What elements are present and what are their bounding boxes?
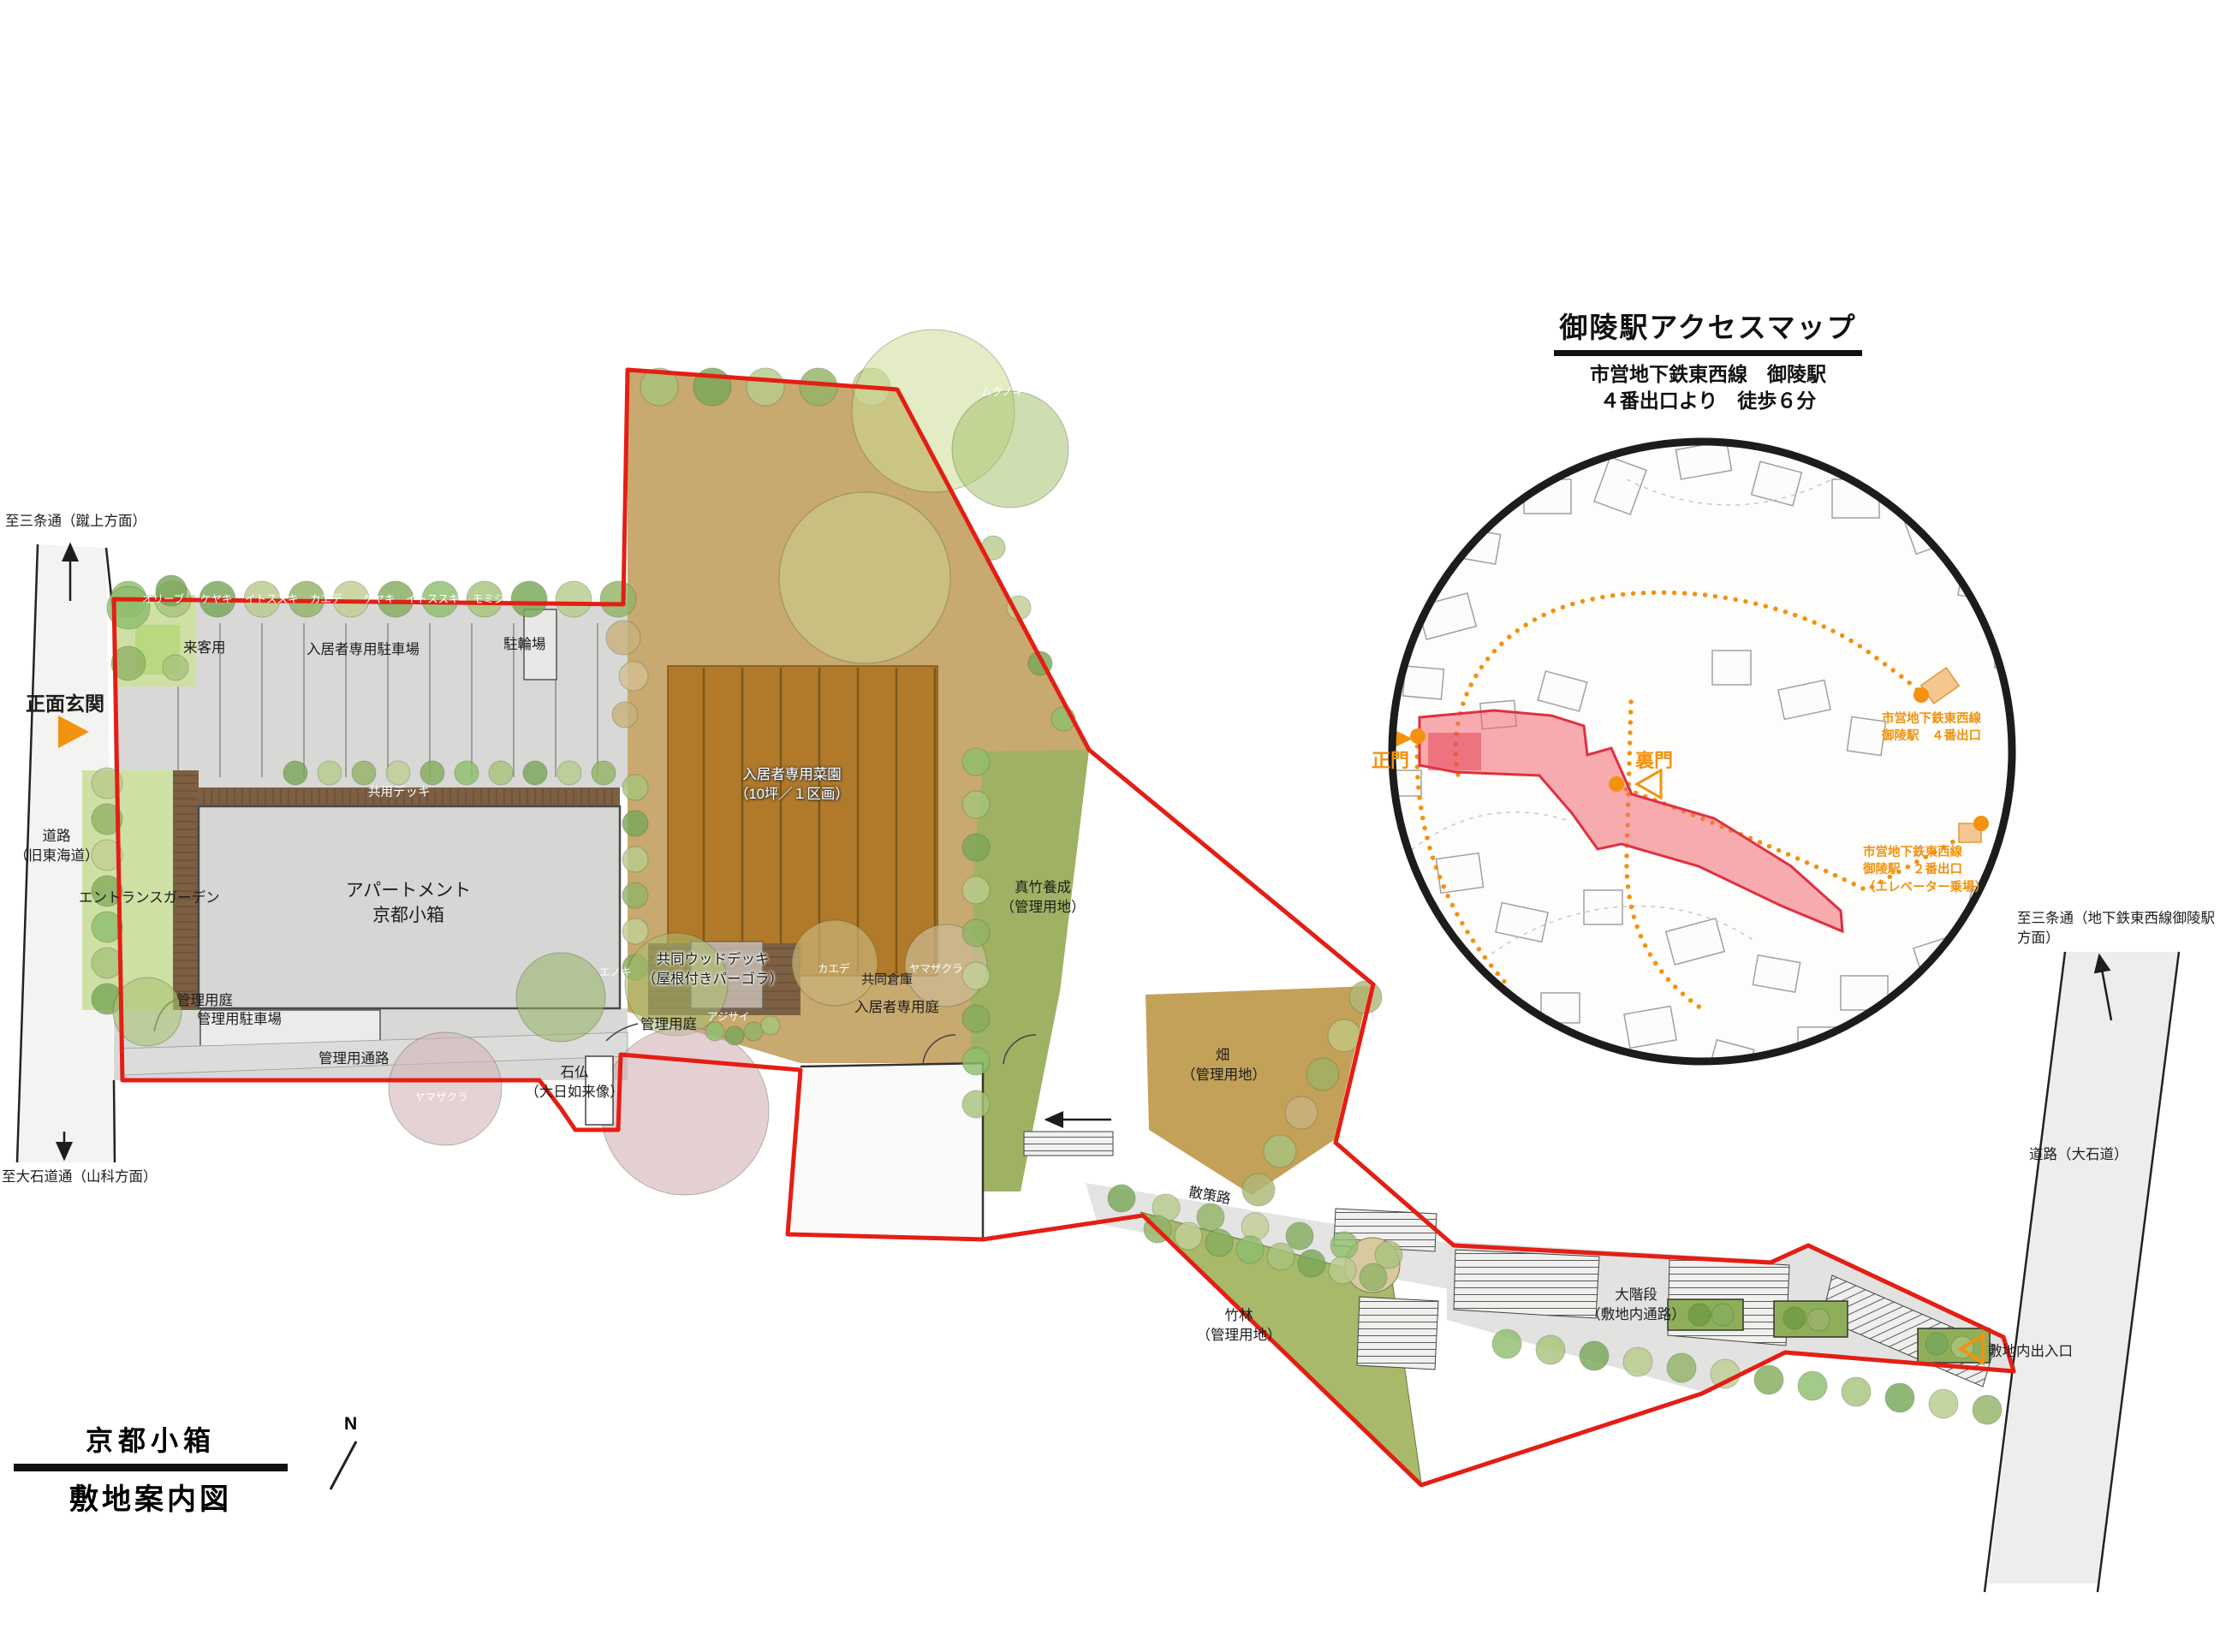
tree-icon (386, 761, 410, 785)
tree-icon (761, 1016, 780, 1035)
tree-icon (601, 1027, 769, 1195)
sheet-title: 敷地案内図 (14, 1471, 288, 1518)
tree-icon (1329, 1257, 1356, 1284)
label-front-entrance: 正面玄関 (26, 690, 104, 717)
tree-icon (606, 621, 640, 655)
tree-icon (556, 581, 592, 617)
tree-icon (489, 761, 513, 785)
tree-icon (1536, 1335, 1565, 1364)
label-common-deck: 共用デッキ (368, 784, 431, 801)
tree-icon (1798, 1371, 1827, 1400)
small-steps (1024, 1132, 1113, 1156)
label-kanri-niwa-left: 管理用庭 (176, 991, 233, 1011)
label-resident-garden: 入居者専用庭 (854, 998, 939, 1018)
tree-icon (511, 581, 547, 617)
label-tree-itosusuki-1: イトススキ (245, 592, 299, 608)
tree-icon (1205, 1229, 1233, 1257)
tree-icon (1242, 1174, 1275, 1206)
tree-icon (619, 662, 648, 691)
tree-icon (1783, 1307, 1806, 1329)
tree-icon (962, 834, 990, 861)
label-visitor-parking: 来客用 (183, 639, 226, 658)
resident-private-garden (788, 1063, 983, 1239)
tree-icon (420, 761, 444, 785)
access-map-subtitle: 市営地下鉄東西線 御陵駅 ４番出口より 徒歩６分 (1537, 361, 1879, 414)
label-bicycle-parking: 駐輪場 (503, 635, 546, 655)
tree-icon (1285, 1096, 1318, 1129)
tree-icon (1286, 1222, 1313, 1250)
tree-icon (612, 702, 638, 728)
tree-icon (557, 761, 581, 785)
tree-icon (622, 918, 648, 944)
label-warehouse: 共同倉庫 (861, 971, 913, 989)
label-tree-kaede-row: カエデ (310, 592, 342, 608)
access-map (1382, 441, 2061, 1079)
tree-icon (1298, 1250, 1325, 1277)
label-tree-itosusuki-2: イトススキ (406, 592, 460, 608)
label-resident-parking: 入居者専用駐車場 (307, 640, 420, 660)
compass-north-label: N (344, 1414, 357, 1435)
label-chikurin: 竹林 （管理用地） (1192, 1306, 1286, 1346)
label-hatake: 畑 （管理用地） (1181, 1046, 1264, 1085)
tree-icon (1236, 1236, 1264, 1263)
tree-icon (622, 847, 648, 872)
label-tree-keyaki-1: ケヤキ (200, 592, 233, 608)
tree-icon (800, 368, 837, 406)
label-tree-olive: オリーブ (142, 592, 184, 608)
stairs-hatch (1357, 1297, 1438, 1370)
hatake-area (1146, 986, 1370, 1195)
tree-icon (1580, 1341, 1609, 1370)
tree-icon (1973, 1395, 2002, 1424)
tree-icon (622, 775, 648, 800)
tree-icon (962, 877, 990, 904)
stairs-hatch (1454, 1250, 1599, 1318)
label-wood-deck-label: 共同ウッドデッキ （屋根付きパーゴラ） (642, 950, 783, 989)
label-tree-ajisai: アジサイ (707, 1010, 750, 1025)
label-tree-yamazakura-1: ヤマザクラ (909, 962, 963, 978)
tree-icon (1688, 1304, 1711, 1326)
tree-icon (747, 368, 784, 406)
label-kanri-tsuro: 管理用通路 (318, 1049, 390, 1069)
label-tree-keyaki-2: ケヤキ (363, 592, 396, 608)
tree-icon (622, 882, 648, 908)
tree-icon (1330, 1232, 1358, 1259)
tree-icon (1328, 1019, 1360, 1052)
label-road-oishi: 道路（大石道） (2029, 1145, 2128, 1165)
tree-icon (1929, 1389, 1958, 1418)
tree-icon (1842, 1377, 1871, 1406)
tree-icon (622, 811, 648, 836)
tree-icon (962, 962, 990, 989)
label-kanri-niwa-mid: 管理用庭 (640, 1015, 697, 1035)
label-tree-momiji: モミジ (473, 592, 505, 608)
tree-icon (962, 748, 990, 775)
tree-icon (1807, 1309, 1830, 1331)
tree-icon (389, 1032, 502, 1145)
tree-icon (318, 761, 342, 785)
tree-icon (1667, 1353, 1696, 1382)
label-road-to-sanjo-left: 至三条通（蹴上方面） (5, 512, 146, 532)
tree-icon (725, 1026, 744, 1045)
tree-icon (962, 919, 990, 947)
tree-icon (163, 655, 188, 680)
label-map-gate-main: 正門 (1372, 748, 1409, 775)
compass-needle-icon (330, 1441, 356, 1489)
label-map-station4: 市営地下鉄東西線 御陵駅 ４番出口 (1882, 710, 1981, 746)
tree-icon (283, 761, 307, 785)
tree-icon (1360, 1263, 1387, 1291)
label-tree-yamazakura-2: ヤマザクラ (414, 1090, 468, 1106)
label-apartment-name: アパートメント 京都小箱 (340, 878, 477, 929)
road-oishi-shape (1985, 952, 2179, 1592)
drawing-title-block: 京都小箱 敷地案内図 (14, 1419, 288, 1518)
access-map-title: 御陵駅アクセスマップ (1554, 305, 1861, 356)
label-road-to-sanjo-right: 至三条通（地下鉄東西線御陵駅方面） (2017, 909, 2226, 948)
tree-icon (523, 761, 547, 785)
label-entrance-garden: エントランスガーデン (79, 888, 220, 908)
project-title: 京都小箱 (14, 1419, 288, 1471)
tree-icon (352, 761, 376, 785)
tree-icon (455, 761, 479, 785)
tree-icon (779, 492, 950, 663)
label-sekibutsu: 石仏 （大日如来像） (522, 1063, 627, 1102)
tree-icon (962, 791, 990, 818)
tree-icon (962, 1048, 990, 1075)
tree-icon (962, 1090, 990, 1118)
tree-icon (92, 948, 122, 978)
tree-icon (592, 761, 616, 785)
tree-icon (952, 391, 1068, 508)
tree-icon (1241, 1213, 1269, 1240)
label-saien: 入居者専用菜園 （10坪／１区画） (732, 765, 852, 805)
site-plan-page: 御陵駅アクセスマップ 市営地下鉄東西線 御陵駅 ４番出口より 徒歩６分 京都小箱… (0, 0, 2226, 1652)
label-tree-kaede-mid: カエデ (818, 962, 850, 978)
tree-icon (1711, 1304, 1734, 1326)
label-road-old-tokaido: 道路 （旧東海道） (12, 827, 101, 866)
label-road-to-oishi-left: 至大石道通（山科方面） (2, 1168, 158, 1187)
label-tree-mukunoki: ムクノキ (981, 385, 1023, 401)
tree-icon (1306, 1058, 1339, 1090)
tree-icon (1175, 1222, 1202, 1250)
tree-icon (1108, 1185, 1135, 1212)
label-madake: 真竹養成 （管理用地） (991, 878, 1094, 918)
tree-icon (1264, 1135, 1296, 1168)
tree-icon (1492, 1329, 1521, 1358)
tree-icon (516, 953, 605, 1042)
access-map-title-block: 御陵駅アクセスマップ 市営地下鉄東西線 御陵駅 ４番出口より 徒歩６分 (1537, 305, 1879, 414)
label-map-gate-back: 裏門 (1635, 748, 1673, 775)
tree-icon (1885, 1383, 1914, 1412)
label-daikaidan: 大階段 （敷地内通路） (1584, 1286, 1688, 1325)
tree-icon (1754, 1365, 1783, 1394)
tree-icon (600, 581, 636, 617)
label-tree-enoki: エノキ (599, 966, 632, 981)
label-kanri-parking: 管理用駐車場 (197, 1010, 282, 1030)
tree-icon (1623, 1347, 1652, 1376)
label-map-station2: 市営地下鉄東西線 御陵駅 ２番出口 （エレベーター乗場） (1863, 844, 1987, 896)
label-site-exit: 敷地内出入口 (1988, 1342, 2073, 1362)
tree-icon (1267, 1243, 1295, 1270)
tree-icon (962, 1005, 990, 1032)
site-plan-drawing (0, 0, 2226, 1652)
tree-icon (1925, 1333, 1948, 1355)
